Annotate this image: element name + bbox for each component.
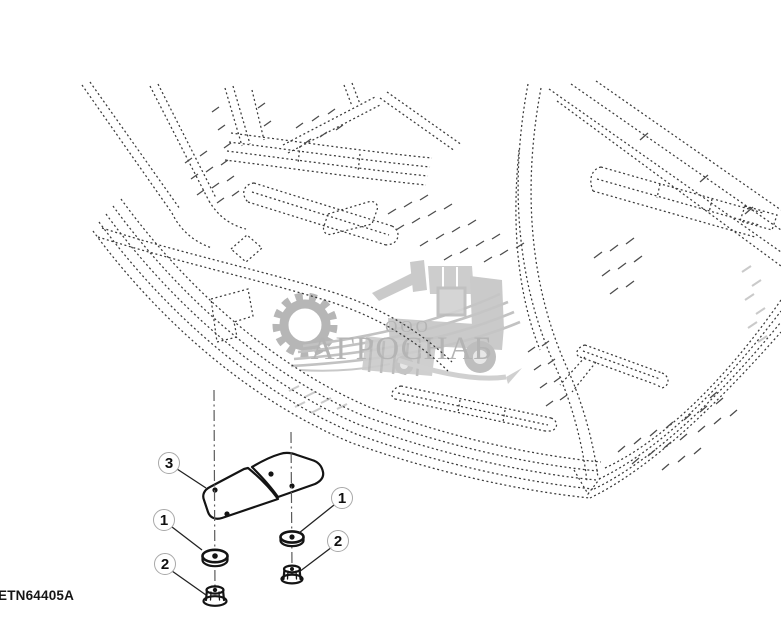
flange-nut-left — [204, 586, 227, 605]
callout-1-left: 1 — [153, 509, 175, 531]
washer-right — [281, 531, 304, 546]
callout-3: 3 — [158, 452, 180, 474]
callout-1-right: 1 — [331, 487, 353, 509]
flange-nut-right — [282, 566, 303, 584]
figure-part-code: ETN64405A — [0, 588, 74, 603]
roof-hidden-lines — [82, 81, 781, 498]
washer-left — [202, 550, 227, 566]
callout-2-right: 2 — [327, 530, 349, 552]
callout-2-left: 2 — [154, 553, 176, 575]
mounting-plate — [203, 453, 323, 519]
parts-diagram-page: ООО АГРОСНАБ — [0, 0, 781, 641]
hatch-marks — [185, 103, 753, 470]
parts-drawing-canvas — [0, 0, 781, 641]
